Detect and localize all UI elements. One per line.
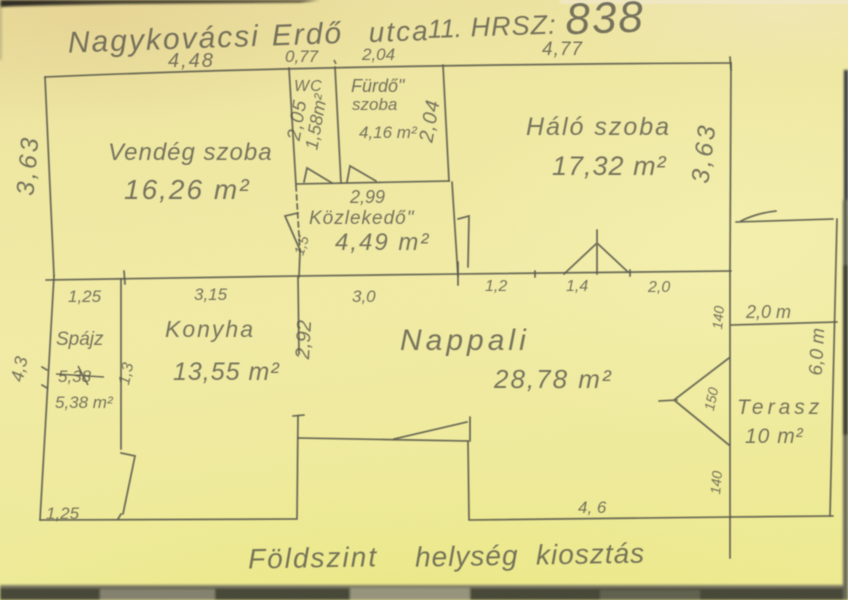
svg-text:2,0 m: 2,0 m bbox=[745, 302, 791, 322]
svg-text:kiosztás: kiosztás bbox=[536, 538, 646, 571]
svg-text:6,0 m: 6,0 m bbox=[806, 327, 829, 376]
svg-text:szoba: szoba bbox=[352, 95, 397, 114]
svg-text:2,99: 2,99 bbox=[349, 187, 385, 207]
svg-text:utca: utca bbox=[368, 15, 430, 48]
svg-text:Nagykovácsi: Nagykovácsi bbox=[67, 20, 260, 60]
svg-text:4, 6: 4, 6 bbox=[578, 498, 607, 517]
svg-text:4,48: 4,48 bbox=[168, 50, 215, 72]
svg-text:16,26 m²: 16,26 m² bbox=[124, 174, 251, 205]
svg-text:Háló szoba: Háló szoba bbox=[526, 113, 671, 141]
svg-text:WC: WC bbox=[294, 78, 323, 95]
svg-text:0,77: 0,77 bbox=[285, 47, 319, 66]
svg-text:3,63: 3,63 bbox=[11, 134, 44, 197]
svg-text:3,15: 3,15 bbox=[194, 285, 228, 304]
svg-text:4,49 m²: 4,49 m² bbox=[335, 229, 430, 256]
svg-text:Vendég szoba: Vendég szoba bbox=[108, 139, 273, 166]
svg-text:Fürdő": Fürdő" bbox=[351, 76, 406, 96]
svg-text:Nappali: Nappali bbox=[400, 324, 530, 357]
svg-text:3,0: 3,0 bbox=[352, 287, 376, 306]
svg-text:28,78 m²: 28,78 m² bbox=[493, 364, 613, 394]
svg-text:Földszint: Földszint bbox=[248, 541, 379, 574]
svg-text:HRSZ:: HRSZ: bbox=[470, 10, 557, 43]
svg-text:17,32 m²: 17,32 m² bbox=[552, 151, 667, 181]
svg-text:1,4: 1,4 bbox=[566, 278, 588, 295]
svg-text:Konyha: Konyha bbox=[165, 316, 255, 342]
svg-text:1,25: 1,25 bbox=[68, 287, 102, 306]
svg-text:Spájz: Spájz bbox=[56, 329, 104, 350]
svg-text:13,55 m²: 13,55 m² bbox=[173, 358, 280, 386]
svg-text:140: 140 bbox=[707, 470, 725, 495]
svg-text:140: 140 bbox=[709, 305, 727, 330]
svg-text:10 m²: 10 m² bbox=[745, 425, 804, 448]
svg-text:1,25: 1,25 bbox=[46, 504, 80, 523]
svg-text:Közlekedő": Közlekedő" bbox=[309, 208, 415, 229]
svg-text:11.: 11. bbox=[427, 13, 462, 44]
svg-text:Terasz: Terasz bbox=[737, 396, 823, 419]
svg-text:1,2: 1,2 bbox=[485, 278, 507, 295]
svg-text:4,77: 4,77 bbox=[542, 39, 583, 60]
svg-text:2,0: 2,0 bbox=[647, 279, 670, 296]
svg-text:2,04: 2,04 bbox=[361, 45, 395, 64]
svg-text:838: 838 bbox=[565, 0, 646, 44]
svg-text:2,92: 2,92 bbox=[292, 320, 316, 361]
svg-text:helység: helység bbox=[415, 540, 519, 573]
svg-text:5,38 m²: 5,38 m² bbox=[55, 393, 114, 412]
svg-text:4,16 m²: 4,16 m² bbox=[359, 123, 418, 142]
